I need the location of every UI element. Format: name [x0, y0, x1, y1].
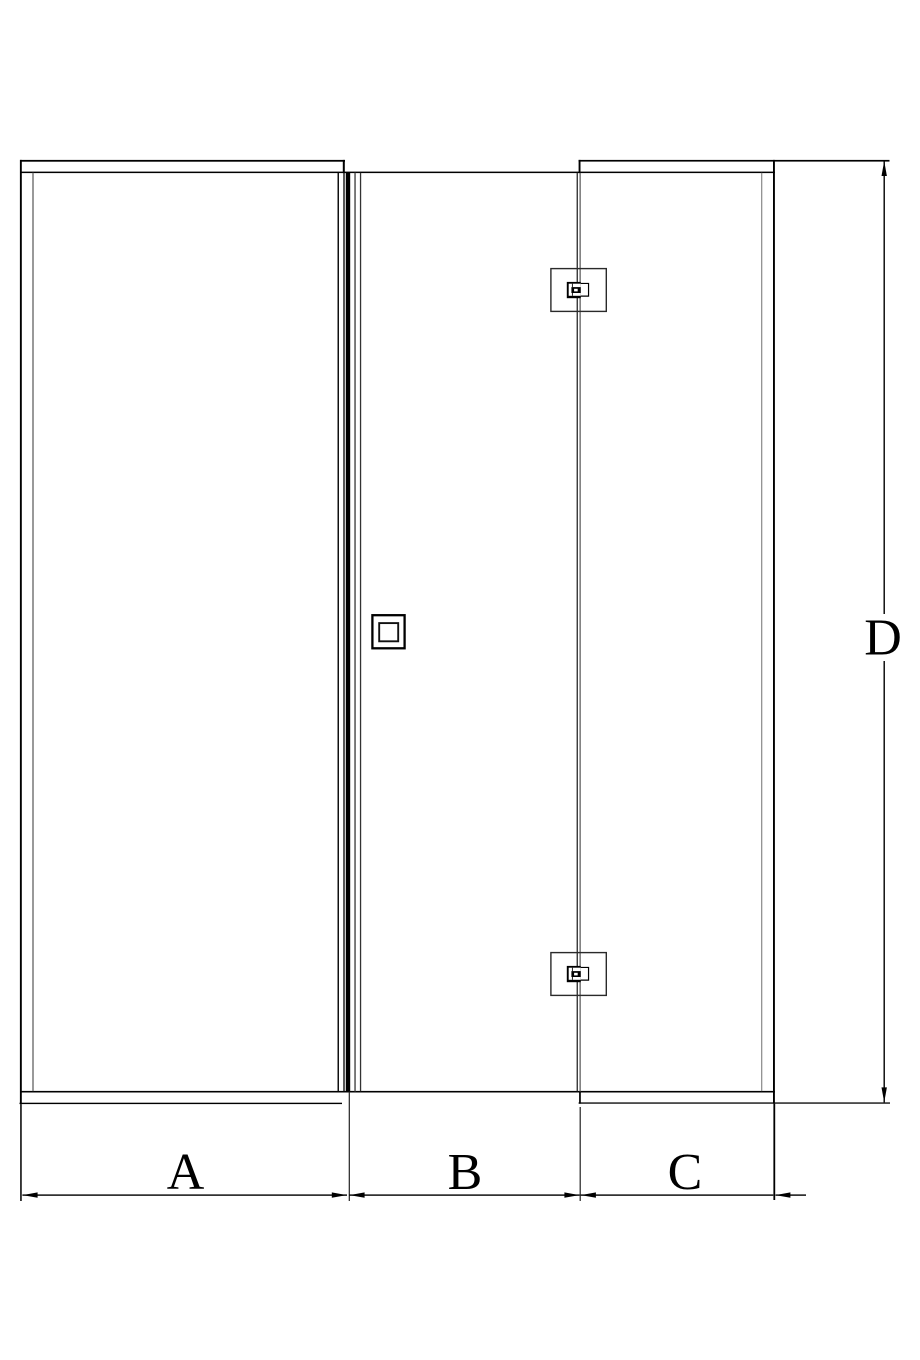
svg-text:C: C — [668, 1144, 703, 1201]
svg-text:B: B — [448, 1144, 483, 1201]
svg-text:A: A — [167, 1144, 205, 1201]
svg-text:D: D — [864, 610, 902, 667]
